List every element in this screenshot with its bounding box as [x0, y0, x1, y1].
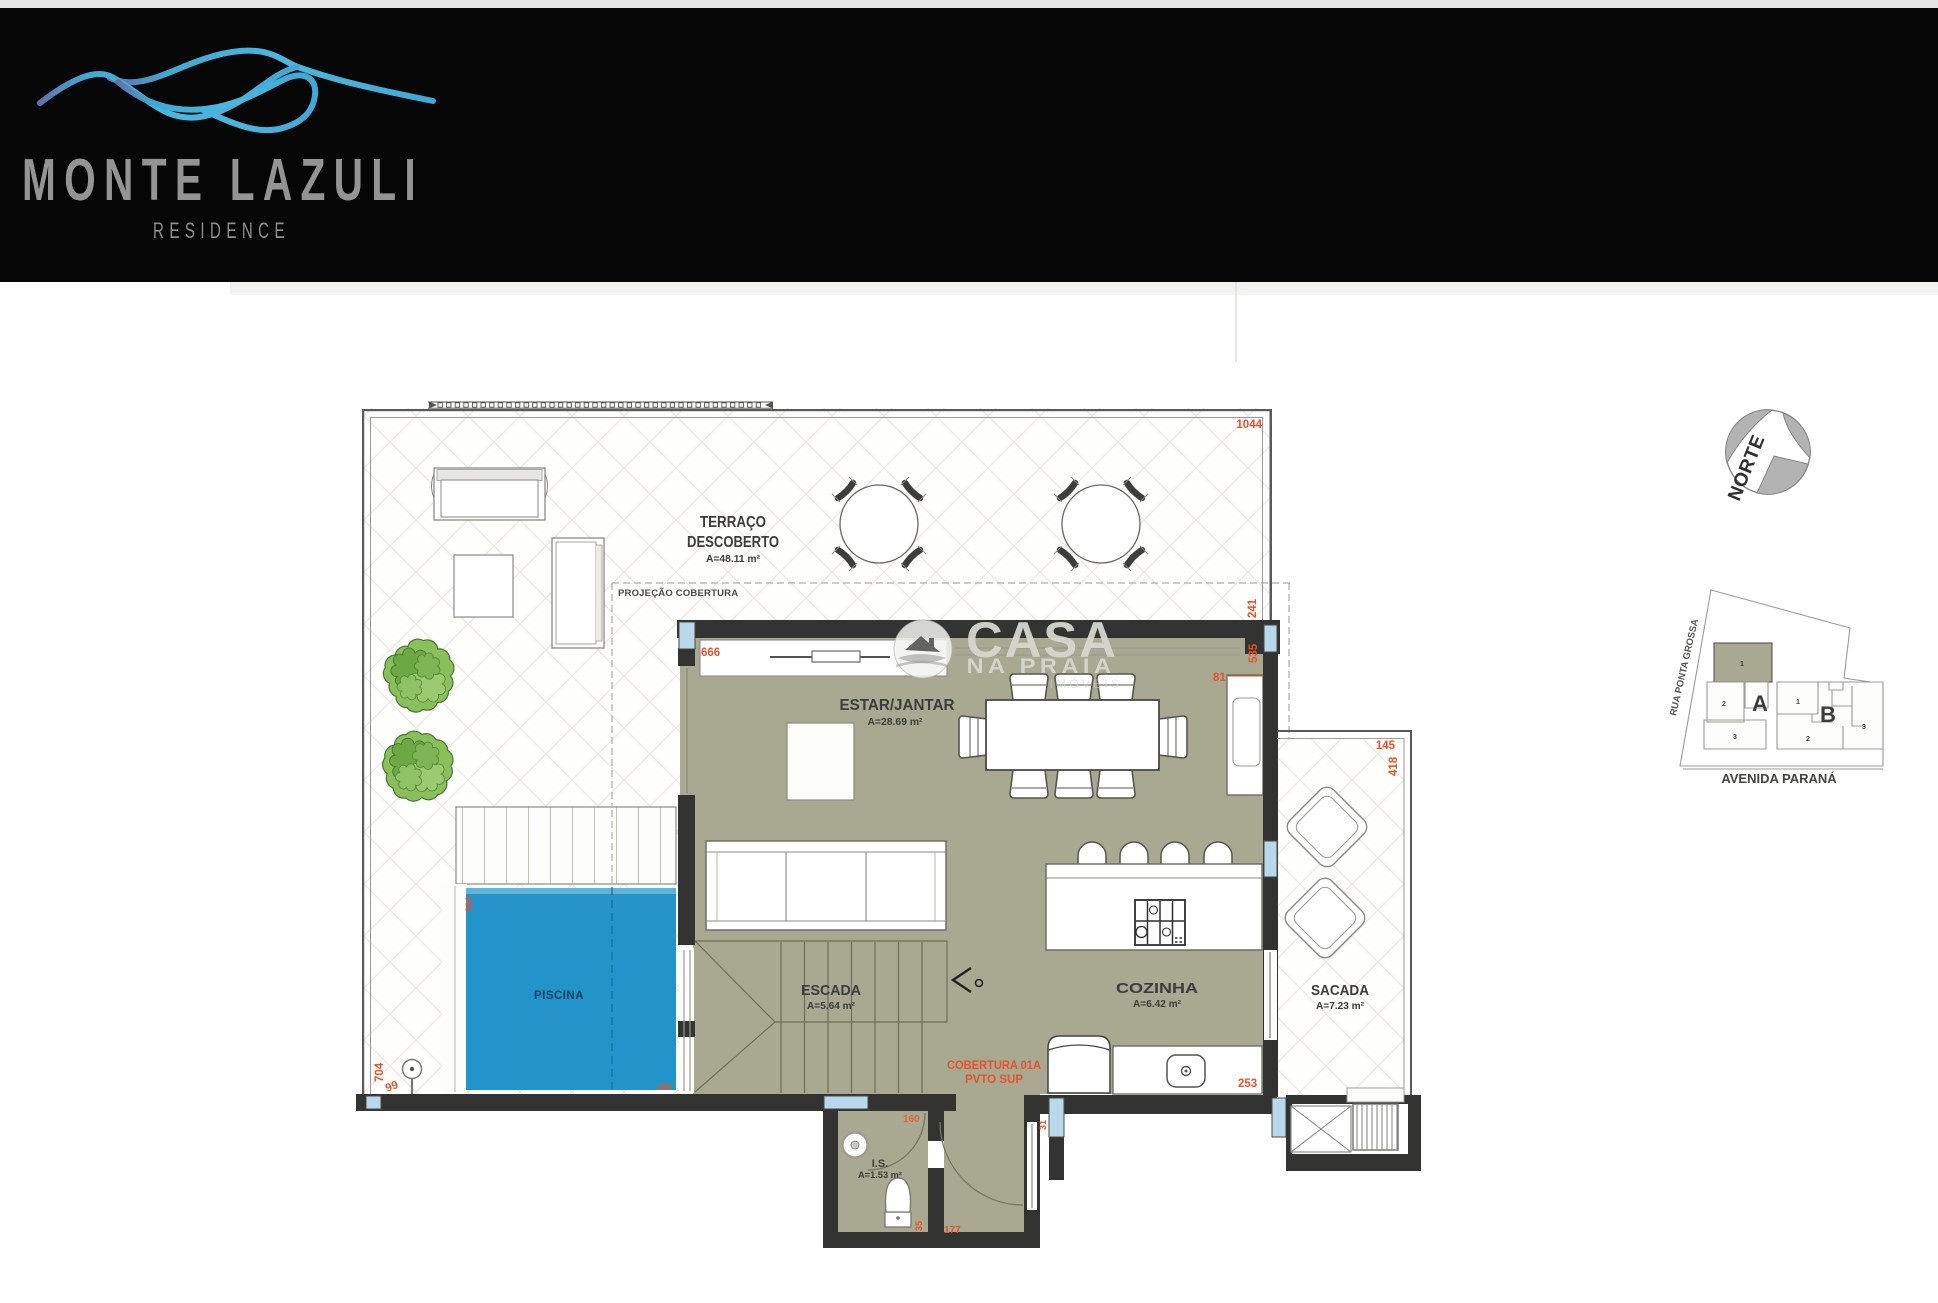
svg-text:A=6.42 m²: A=6.42 m² [1133, 999, 1182, 1010]
svg-text:PISCINA: PISCINA [534, 990, 584, 1002]
svg-text:1: 1 [1740, 661, 1744, 668]
svg-text:NA PRAIA: NA PRAIA [967, 655, 1116, 678]
svg-text:2: 2 [1722, 701, 1726, 708]
svg-text:241: 241 [1247, 598, 1259, 618]
svg-text:PVTO SUP: PVTO SUP [965, 1074, 1023, 1086]
svg-text:264: 264 [464, 897, 474, 912]
svg-text:RESIDENCE: RESIDENCE [153, 218, 290, 243]
svg-text:253: 253 [1238, 1078, 1257, 1090]
svg-text:A=5.64 m²: A=5.64 m² [807, 1001, 856, 1012]
svg-text:666: 666 [701, 647, 720, 659]
svg-text:145: 145 [1376, 740, 1396, 752]
svg-text:MONTE LAZULI: MONTE LAZULI [22, 147, 424, 213]
svg-text:177: 177 [944, 1225, 961, 1236]
svg-text:3: 3 [1862, 724, 1866, 731]
svg-text:A=7.23 m²: A=7.23 m² [1316, 1001, 1365, 1012]
svg-text:535: 535 [1248, 643, 1260, 663]
svg-text:B: B [1820, 702, 1836, 727]
svg-text:A=1.53 m²: A=1.53 m² [858, 1170, 902, 1180]
svg-text:IMÓVEIS: IMÓVEIS [1050, 678, 1122, 691]
svg-text:COZINHA: COZINHA [1116, 980, 1198, 997]
svg-text:TERRAÇO: TERRAÇO [700, 514, 766, 531]
svg-text:2: 2 [1806, 736, 1810, 743]
svg-text:A=48.11 m²: A=48.11 m² [706, 554, 761, 565]
svg-text:AVENIDA PARANÁ: AVENIDA PARANÁ [1721, 771, 1837, 786]
svg-text:1: 1 [1796, 699, 1800, 706]
svg-text:SACADA: SACADA [1311, 982, 1369, 999]
svg-text:31: 31 [1038, 1120, 1048, 1130]
svg-text:ESTAR/JANTAR: ESTAR/JANTAR [840, 697, 955, 714]
svg-text:COBERTURA 01A: COBERTURA 01A [947, 1060, 1041, 1072]
svg-text:35: 35 [914, 1221, 924, 1231]
svg-text:I.S.: I.S. [872, 1158, 889, 1170]
svg-text:1044: 1044 [1236, 419, 1262, 431]
svg-text:160: 160 [903, 1114, 920, 1125]
svg-text:418: 418 [1388, 756, 1400, 776]
svg-text:A=28.69 m²: A=28.69 m² [868, 717, 924, 728]
svg-text:81: 81 [1213, 672, 1226, 684]
svg-text:ESCADA: ESCADA [801, 982, 861, 999]
svg-text:PROJEÇÃO COBERTURA: PROJEÇÃO COBERTURA [618, 588, 738, 599]
svg-text:3: 3 [1733, 734, 1737, 741]
svg-text:355: 355 [657, 1082, 672, 1092]
svg-text:DESCOBERTO: DESCOBERTO [687, 534, 779, 551]
svg-text:704: 704 [374, 1062, 386, 1082]
svg-text:A: A [1752, 691, 1768, 716]
